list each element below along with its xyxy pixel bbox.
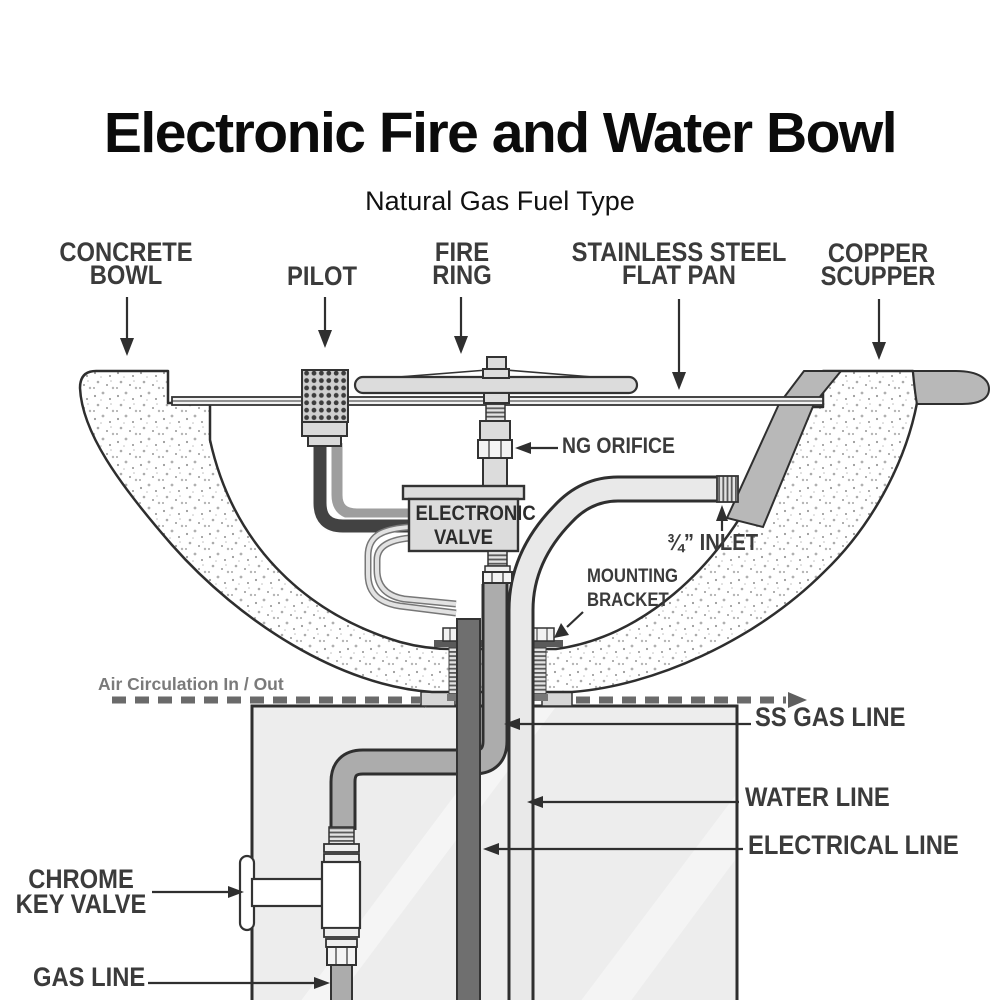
label-pilot: PILOT [260,265,383,288]
pilot-burner [302,370,348,446]
label-concrete-bowl: CONCRETE BOWL [38,241,214,287]
gas-riser [478,404,512,487]
label-electronic-valve: ELECTRONIC VALVE [416,502,512,550]
label-copper-scupper: COPPER SCUPPER [799,242,957,288]
scupper-outer-lip [913,371,989,404]
gas-line-pipe [331,965,352,1000]
key-valve-body [322,862,360,928]
inlet-threads [717,476,738,502]
key-valve-handle [252,879,322,906]
pilot-tubes [320,443,412,526]
label-electrical-line: ELECTRICAL LINE [748,834,959,857]
label-air-circulation: Air Circulation In / Out [98,673,284,696]
diagram-canvas: Electronic Fire and Water Bowl Natural G… [0,0,1000,1000]
electrical-conduit [457,619,480,1000]
label-ss-gas-line: SS GAS LINE [755,706,906,729]
label-inlet: ¾” INLET [667,531,758,554]
label-fire-ring: FIRE RING [400,241,523,287]
page-subtitle: Natural Gas Fuel Type [0,186,1000,217]
label-stainless-steel-flat-pan: STAINLESS STEEL FLAT PAN [565,241,794,287]
ng-orifice-fitting [478,440,512,458]
label-chrome-key-valve: CHROME KEY VALVE [11,867,152,917]
label-mounting-bracket: MOUNTING BRACKET [587,565,678,613]
label-ng-orifice: NG ORIFICE [562,434,675,457]
label-gas-line: GAS LINE [33,966,145,989]
page-title: Electronic Fire and Water Bowl [0,100,1000,166]
label-water-line: WATER LINE [745,786,890,809]
